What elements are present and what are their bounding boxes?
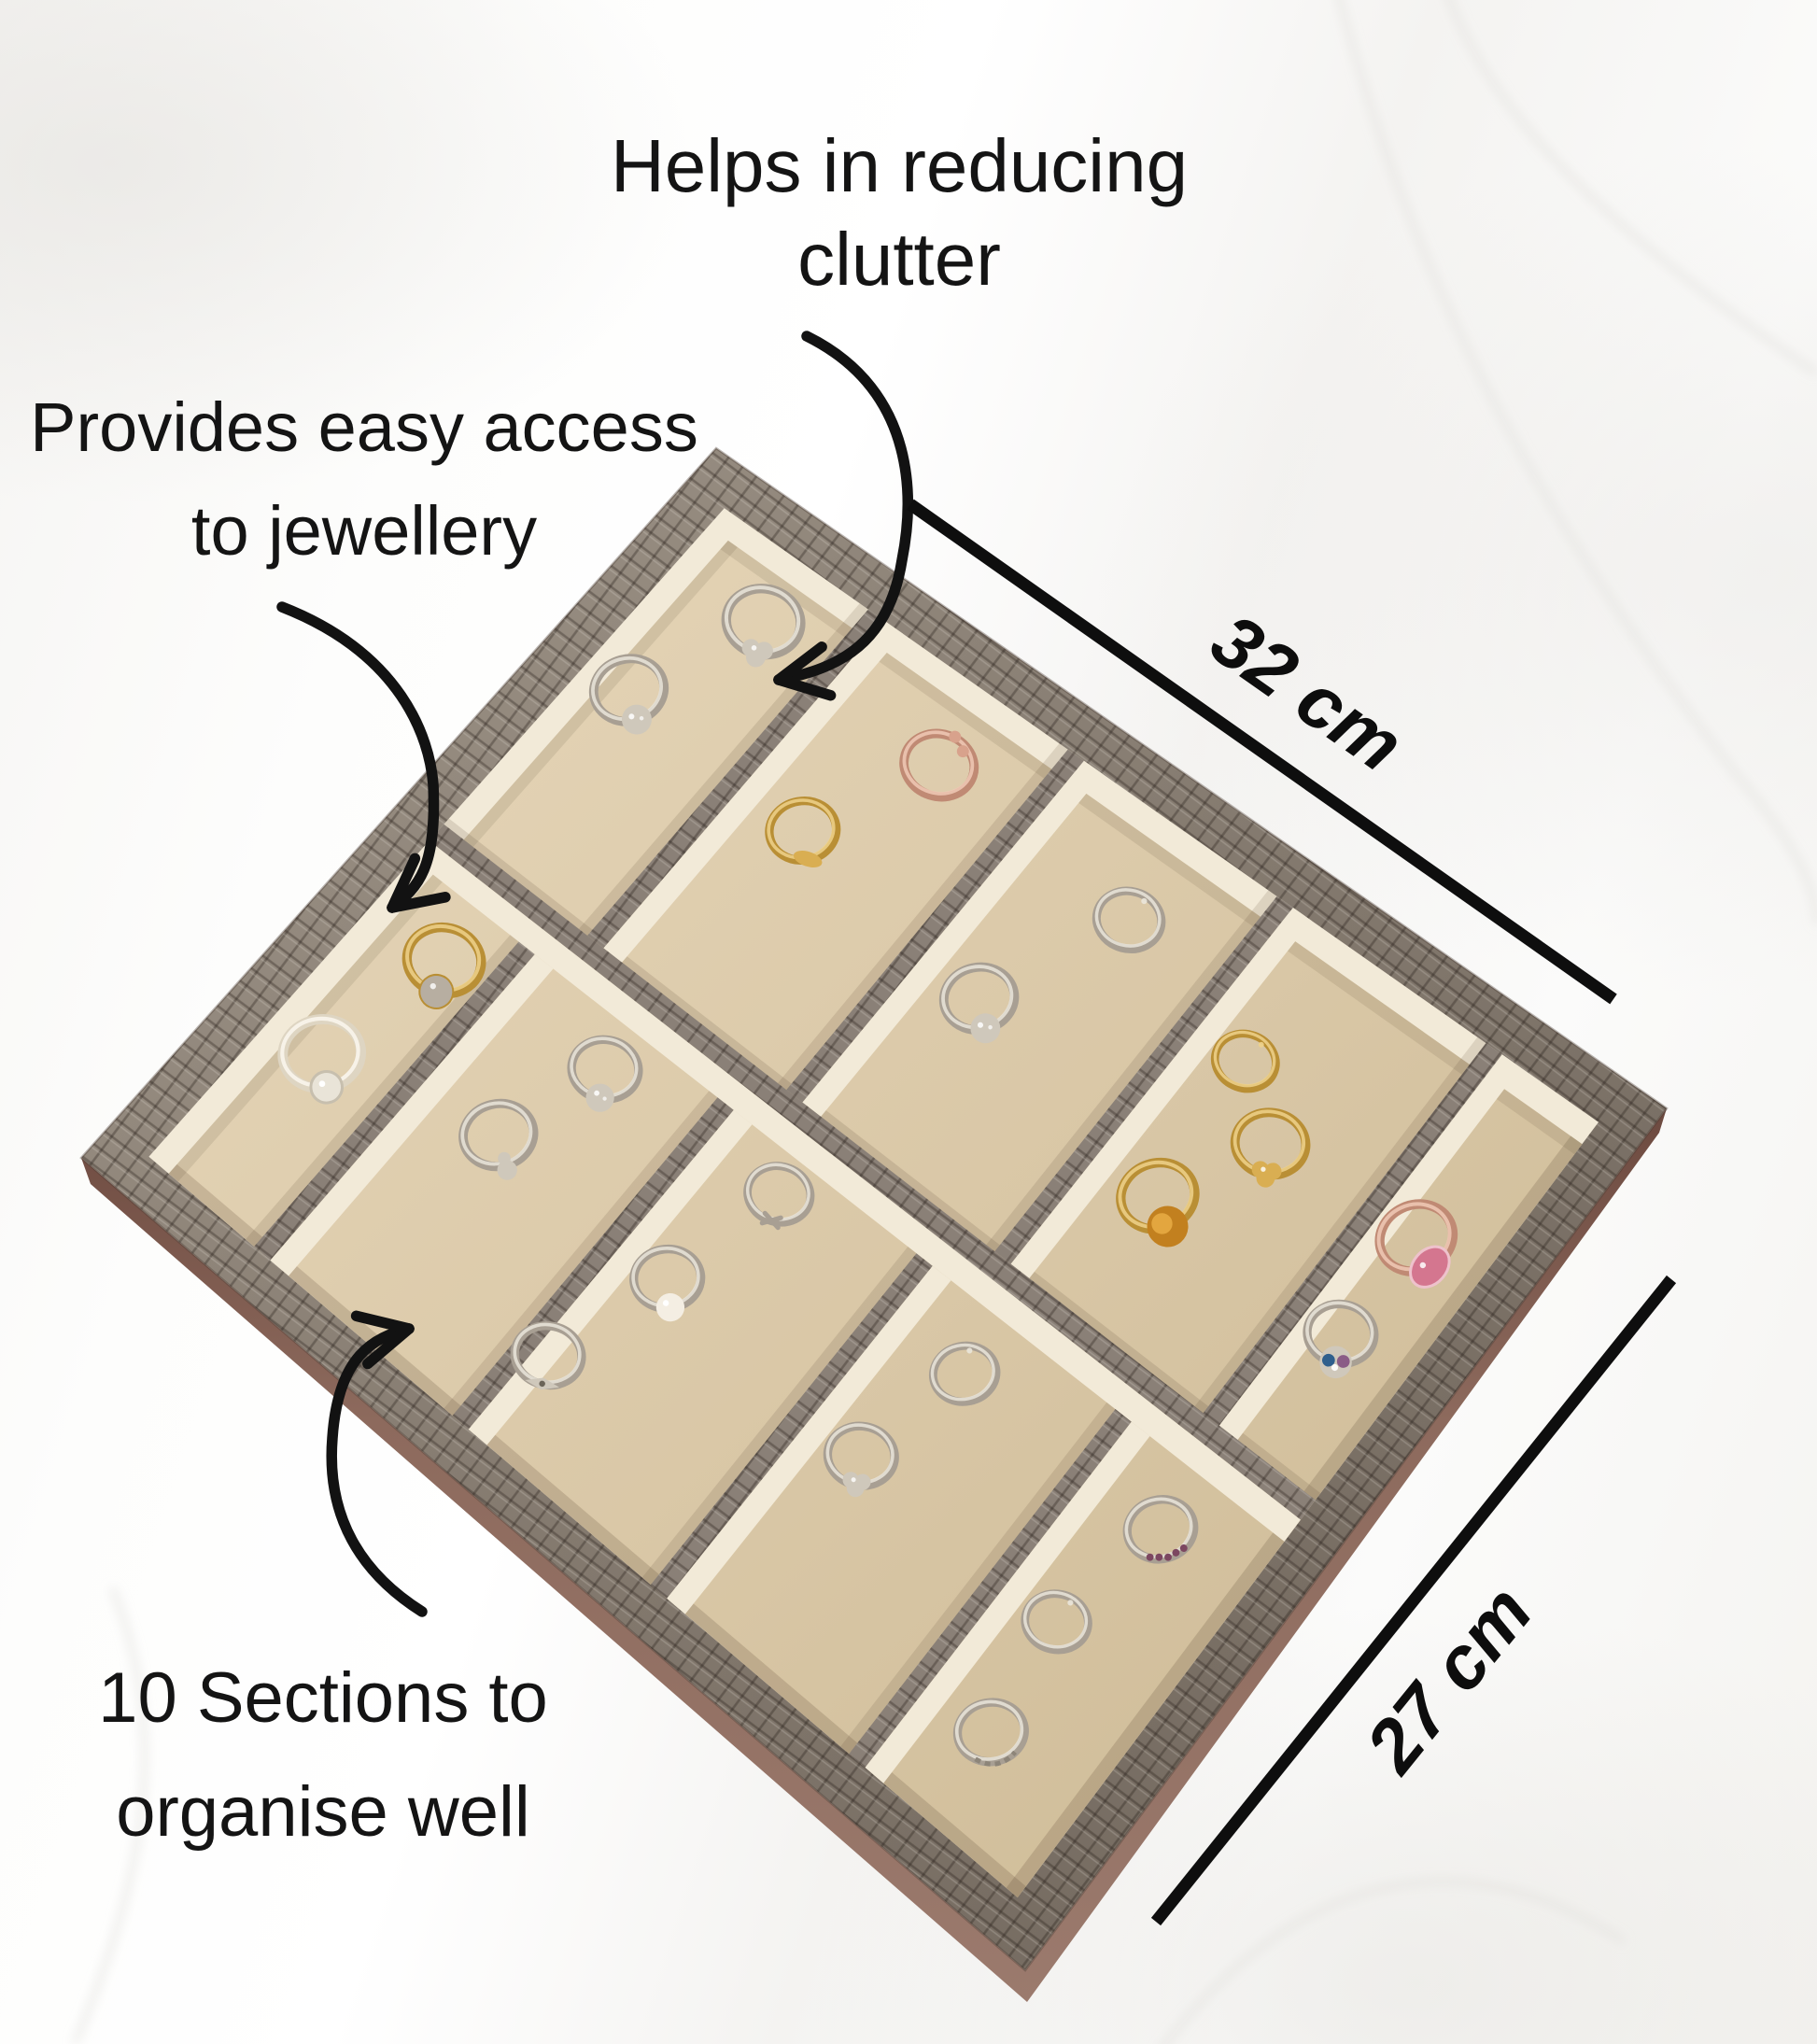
- marble-vein: [1158, 1882, 1625, 2044]
- annotation-line: Provides easy access: [30, 375, 698, 479]
- annotation-line: organise well: [98, 1755, 548, 1869]
- annotation-line: to jewellery: [30, 479, 698, 583]
- annotation-ten-sections: 10 Sections to organise well: [98, 1642, 548, 1868]
- marble-vein: [1438, 0, 1817, 374]
- annotation-line: clutter: [611, 213, 1188, 306]
- marble-vein: [1335, 0, 1817, 924]
- annotation-reduce-clutter: Helps in reducing clutter: [611, 120, 1188, 306]
- annotation-line: 10 Sections to: [98, 1642, 548, 1755]
- annotation-easy-access: Provides easy access to jewellery: [30, 375, 698, 583]
- product-infographic: Helps in reducing clutter Provides easy …: [0, 0, 1817, 2044]
- annotation-line: Helps in reducing: [611, 120, 1188, 213]
